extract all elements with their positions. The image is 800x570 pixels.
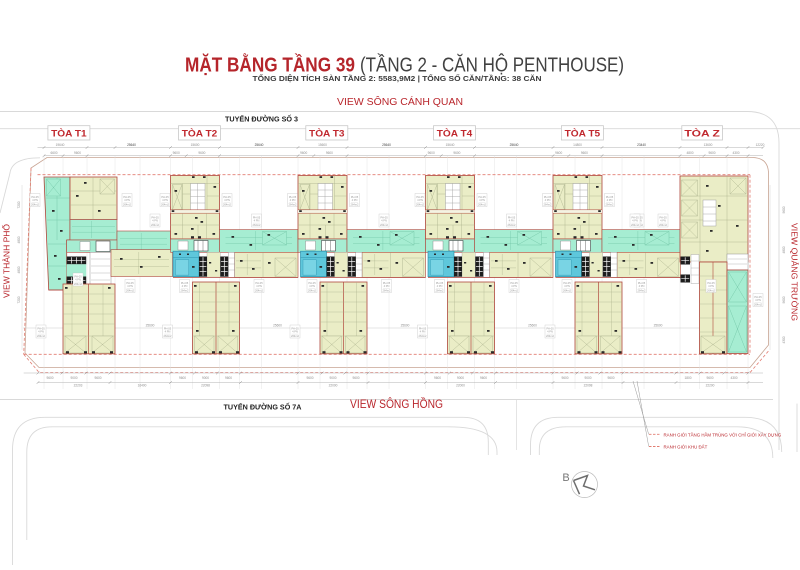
svg-text:9000: 9000 xyxy=(70,376,77,380)
svg-text:22098: 22098 xyxy=(584,383,593,387)
svg-text:264m2: 264m2 xyxy=(508,223,516,227)
svg-text:4 PN: 4 PN xyxy=(38,330,44,334)
svg-text:4 PN: 4 PN xyxy=(632,219,638,223)
svg-text:9600: 9600 xyxy=(300,151,307,155)
svg-text:264m2: 264m2 xyxy=(546,334,554,338)
svg-text:PH-05: PH-05 xyxy=(161,195,169,199)
svg-text:PH-05: PH-05 xyxy=(123,195,131,199)
svg-text:9600: 9600 xyxy=(225,376,232,380)
svg-text:TÒA T2: TÒA T2 xyxy=(182,127,218,138)
svg-text:MẶT BẰNG TẦNG 39: MẶT BẰNG TẦNG 39 xyxy=(185,53,355,77)
svg-text:PH-05: PH-05 xyxy=(419,326,427,330)
svg-text:4 PN: 4 PN xyxy=(708,284,714,288)
svg-text:PH-05: PH-05 xyxy=(74,274,82,278)
svg-text:15600: 15600 xyxy=(191,143,200,147)
svg-text:264m2: 264m2 xyxy=(161,203,169,207)
svg-text:9600: 9600 xyxy=(708,151,715,155)
svg-text:22000: 22000 xyxy=(456,383,465,387)
svg-text:9600: 9600 xyxy=(179,376,186,380)
svg-text:15640: 15640 xyxy=(446,143,455,147)
svg-text:25600: 25600 xyxy=(273,324,282,328)
svg-text:264m2: 264m2 xyxy=(289,203,297,207)
svg-text:PH-05: PH-05 xyxy=(416,195,424,199)
svg-text:PH-05: PH-05 xyxy=(181,281,189,285)
svg-text:264m2: 264m2 xyxy=(478,203,486,207)
svg-text:4 PN: 4 PN xyxy=(437,284,443,288)
svg-text:4300: 4300 xyxy=(782,336,786,343)
svg-text:4 PN: 4 PN xyxy=(162,198,168,202)
svg-text:13600: 13600 xyxy=(704,143,713,147)
svg-text:6600: 6600 xyxy=(50,151,57,155)
svg-text:1800: 1800 xyxy=(684,376,691,380)
svg-text:PH-05: PH-05 xyxy=(631,215,639,219)
svg-text:264m2: 264m2 xyxy=(308,289,316,293)
svg-text:264m2: 264m2 xyxy=(126,289,134,293)
svg-text:9600: 9600 xyxy=(434,376,441,380)
svg-text:4 PN: 4 PN xyxy=(309,284,315,288)
svg-text:4 PN: 4 PN xyxy=(509,219,515,223)
svg-text:264m2: 264m2 xyxy=(544,203,552,207)
svg-text:264m2: 264m2 xyxy=(383,289,391,293)
svg-text:VIEW SÔNG HỒNG: VIEW SÔNG HỒNG xyxy=(350,396,443,411)
svg-text:4 PN: 4 PN xyxy=(352,198,358,202)
svg-text:264m2: 264m2 xyxy=(416,203,424,207)
svg-text:9600: 9600 xyxy=(306,376,313,380)
svg-text:4 PN: 4 PN xyxy=(420,330,426,334)
svg-text:PH-05: PH-05 xyxy=(754,295,762,299)
svg-text:RANH GIỚI KHU ĐẤT: RANH GIỚI KHU ĐẤT xyxy=(664,445,708,450)
svg-text:4 PN: 4 PN xyxy=(384,284,390,288)
svg-text:VIEW SÔNG CÁNH QUAN: VIEW SÔNG CÁNH QUAN xyxy=(337,95,463,108)
svg-text:4800: 4800 xyxy=(686,151,693,155)
svg-text:4 PN: 4 PN xyxy=(511,284,517,288)
svg-text:25640: 25640 xyxy=(127,143,136,147)
svg-text:4 PN: 4 PN xyxy=(607,198,613,202)
svg-text:4 PN: 4 PN xyxy=(290,198,296,202)
svg-text:264m2: 264m2 xyxy=(436,289,444,293)
svg-text:PH-05: PH-05 xyxy=(436,281,444,285)
svg-text:19640: 19640 xyxy=(56,143,65,147)
svg-text:9600: 9600 xyxy=(581,151,588,155)
svg-text:PH-05: PH-05 xyxy=(126,281,134,285)
svg-text:4 PN: 4 PN xyxy=(165,330,171,334)
svg-text:TÒA T3: TÒA T3 xyxy=(309,127,345,138)
svg-text:22203: 22203 xyxy=(74,383,83,387)
svg-text:4 PN: 4 PN xyxy=(182,284,188,288)
svg-text:7200: 7200 xyxy=(17,296,21,303)
svg-text:4 PN: 4 PN xyxy=(224,198,230,202)
svg-text:PH-05: PH-05 xyxy=(289,195,297,199)
svg-text:PH-05: PH-05 xyxy=(546,326,554,330)
svg-text:264m2: 264m2 xyxy=(123,203,131,207)
svg-text:TÒA Z: TÒA Z xyxy=(684,127,720,138)
svg-text:264m2: 264m2 xyxy=(563,289,571,293)
svg-text:PH-05: PH-05 xyxy=(255,281,263,285)
svg-text:PH-05: PH-05 xyxy=(380,215,388,219)
svg-text:4 PN: 4 PN xyxy=(547,330,553,334)
svg-text:264m2: 264m2 xyxy=(631,223,639,227)
svg-text:22098: 22098 xyxy=(201,383,210,387)
svg-text:9600: 9600 xyxy=(453,151,460,155)
svg-text:PH-05: PH-05 xyxy=(510,281,518,285)
svg-text:9000: 9000 xyxy=(584,376,591,380)
svg-text:PH-05: PH-05 xyxy=(383,281,391,285)
svg-text:TUYẾN ĐƯỜNG SỐ 7A: TUYẾN ĐƯỜNG SỐ 7A xyxy=(224,402,303,412)
svg-text:23440: 23440 xyxy=(637,143,646,147)
svg-text:PH-05: PH-05 xyxy=(351,195,359,199)
svg-text:9600: 9600 xyxy=(480,376,487,380)
svg-text:264m2: 264m2 xyxy=(255,289,263,293)
svg-text:25640: 25640 xyxy=(510,143,519,147)
svg-text:9600: 9600 xyxy=(94,376,101,380)
svg-text:4 PN: 4 PN xyxy=(32,198,38,202)
svg-text:25600: 25600 xyxy=(528,324,537,328)
svg-text:9000: 9000 xyxy=(457,376,464,380)
svg-text:264m2: 264m2 xyxy=(659,223,667,227)
svg-text:9600: 9600 xyxy=(352,376,359,380)
svg-text:264m2: 264m2 xyxy=(291,334,299,338)
svg-text:9600: 9600 xyxy=(555,151,562,155)
svg-text:9600: 9600 xyxy=(198,151,205,155)
svg-text:9600: 9600 xyxy=(561,376,568,380)
svg-text:4 PN: 4 PN xyxy=(75,278,81,282)
svg-text:15600: 15600 xyxy=(318,143,327,147)
svg-text:4300: 4300 xyxy=(732,151,739,155)
svg-text:25600: 25600 xyxy=(146,324,155,328)
svg-text:VIEW QUẢNG TRƯỜNG: VIEW QUẢNG TRƯỜNG xyxy=(790,223,799,321)
svg-text:264m2: 264m2 xyxy=(223,203,231,207)
svg-text:9600: 9600 xyxy=(173,151,180,155)
svg-text:PH-05: PH-05 xyxy=(659,215,667,219)
svg-text:4800: 4800 xyxy=(782,246,786,253)
svg-text:PH-05: PH-05 xyxy=(31,195,39,199)
svg-text:9600: 9600 xyxy=(74,151,81,155)
svg-text:TÒA T5: TÒA T5 xyxy=(565,127,601,138)
svg-text:PH-05: PH-05 xyxy=(37,326,45,330)
svg-text:B: B xyxy=(562,472,569,484)
svg-text:9600: 9600 xyxy=(782,206,786,213)
svg-text:PH-05: PH-05 xyxy=(291,326,299,330)
svg-text:4 PN: 4 PN xyxy=(755,298,761,302)
svg-text:TỔNG DIỆN TÍCH SÀN TẦNG 2: 558: TỔNG DIỆN TÍCH SÀN TẦNG 2: 5583,9M2 | TỔ… xyxy=(253,73,542,83)
svg-text:TUYẾN ĐƯỜNG SỐ 3: TUYẾN ĐƯỜNG SỐ 3 xyxy=(225,114,298,124)
svg-text:4 PN: 4 PN xyxy=(152,219,158,223)
svg-text:PH-05: PH-05 xyxy=(707,281,715,285)
svg-text:264m2: 264m2 xyxy=(707,289,715,293)
svg-text:RANH GIỚI TẦNG HẦM TRÙNG VỚI C: RANH GIỚI TẦNG HẦM TRÙNG VỚI CHỈ GIỚI XÂ… xyxy=(664,432,782,437)
svg-text:4 PN: 4 PN xyxy=(660,219,666,223)
svg-text:9000: 9000 xyxy=(202,376,209,380)
svg-text:PH-05: PH-05 xyxy=(508,215,516,219)
svg-text:VIEW THÀNH PHỐ: VIEW THÀNH PHỐ xyxy=(2,224,12,298)
svg-text:PH-05: PH-05 xyxy=(478,195,486,199)
svg-text:9000: 9000 xyxy=(329,376,336,380)
svg-text:22000: 22000 xyxy=(329,383,338,387)
svg-text:264m2: 264m2 xyxy=(31,203,39,207)
svg-text:PH-05: PH-05 xyxy=(308,281,316,285)
svg-text:264m2: 264m2 xyxy=(754,303,762,307)
svg-text:4 PN: 4 PN xyxy=(256,284,262,288)
svg-text:7200: 7200 xyxy=(17,201,21,208)
svg-text:264m2: 264m2 xyxy=(606,203,614,207)
svg-text:16400: 16400 xyxy=(138,383,147,387)
svg-text:PH-05: PH-05 xyxy=(606,195,614,199)
svg-text:4 PN: 4 PN xyxy=(545,198,551,202)
svg-text:TÒA T4: TÒA T4 xyxy=(437,127,473,138)
svg-text:PH-05: PH-05 xyxy=(563,281,571,285)
svg-text:25640: 25640 xyxy=(255,143,264,147)
svg-text:25600: 25600 xyxy=(654,324,663,328)
svg-text:4 PN: 4 PN xyxy=(292,330,298,334)
svg-text:4800: 4800 xyxy=(17,236,21,243)
svg-text:14800: 14800 xyxy=(573,143,582,147)
svg-text:264m2: 264m2 xyxy=(253,223,261,227)
svg-text:264m2: 264m2 xyxy=(419,334,427,338)
svg-text:264m2: 264m2 xyxy=(380,223,388,227)
svg-text:9600: 9600 xyxy=(46,376,53,380)
svg-text:264m2: 264m2 xyxy=(74,282,82,286)
svg-text:PH-05: PH-05 xyxy=(544,195,552,199)
svg-text:264m2: 264m2 xyxy=(151,223,159,227)
svg-text:264m2: 264m2 xyxy=(351,203,359,207)
svg-text:TÒA T1: TÒA T1 xyxy=(51,127,87,138)
svg-text:PH-05: PH-05 xyxy=(151,215,159,219)
svg-text:25600: 25600 xyxy=(401,324,410,328)
svg-text:4 PN: 4 PN xyxy=(381,219,387,223)
svg-text:4 PN: 4 PN xyxy=(124,198,130,202)
svg-text:4 PN: 4 PN xyxy=(639,284,645,288)
svg-text:PH-05: PH-05 xyxy=(223,195,231,199)
svg-text:4 PN: 4 PN xyxy=(417,198,423,202)
svg-text:4800: 4800 xyxy=(17,266,21,273)
svg-text:264m2: 264m2 xyxy=(510,289,518,293)
svg-text:PH-05: PH-05 xyxy=(164,326,172,330)
svg-text:264m2: 264m2 xyxy=(164,334,172,338)
svg-text:264m2: 264m2 xyxy=(37,334,45,338)
svg-text:9600: 9600 xyxy=(782,296,786,303)
svg-text:9600: 9600 xyxy=(326,151,333,155)
svg-text:9600: 9600 xyxy=(607,376,614,380)
svg-text:264m2: 264m2 xyxy=(181,289,189,293)
svg-text:4 PN: 4 PN xyxy=(564,284,570,288)
svg-text:12220: 12220 xyxy=(756,143,765,147)
svg-text:22200: 22200 xyxy=(706,383,715,387)
svg-text:264m2: 264m2 xyxy=(638,289,646,293)
svg-text:9600: 9600 xyxy=(706,376,713,380)
svg-text:PH-05: PH-05 xyxy=(638,281,646,285)
svg-text:PH-05: PH-05 xyxy=(253,215,261,219)
svg-text:4300: 4300 xyxy=(730,376,737,380)
svg-text:9600: 9600 xyxy=(428,151,435,155)
svg-text:4 PN: 4 PN xyxy=(479,198,485,202)
svg-text:4 PN: 4 PN xyxy=(127,284,133,288)
svg-text:25640: 25640 xyxy=(382,143,391,147)
svg-text:4 PN: 4 PN xyxy=(254,219,260,223)
